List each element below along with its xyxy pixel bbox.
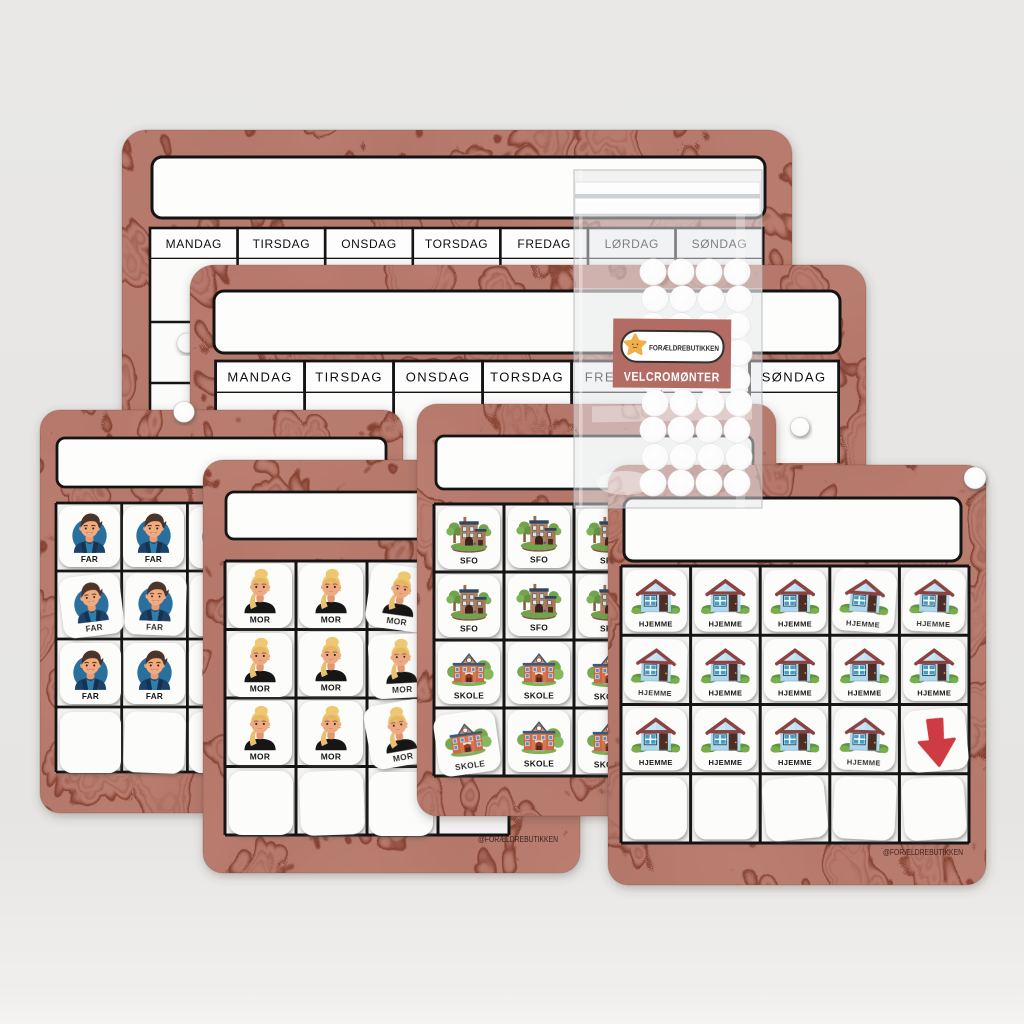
svg-text:FAR: FAR <box>146 622 164 632</box>
svg-text:SFO: SFO <box>460 624 478 634</box>
svg-text:FREDAG: FREDAG <box>517 237 571 251</box>
svg-text:TIRSDAG: TIRSDAG <box>253 237 311 251</box>
svg-text:HJEMME: HJEMME <box>708 619 742 628</box>
svg-text:MANDAG: MANDAG <box>166 237 222 251</box>
svg-text:SKOLE: SKOLE <box>454 691 484 701</box>
svg-text:MOR: MOR <box>250 615 270 625</box>
svg-text:MOR: MOR <box>392 684 413 695</box>
svg-text:SFO: SFO <box>460 556 478 566</box>
svg-text:MOR: MOR <box>250 684 270 694</box>
svg-text:TORSDAG: TORSDAG <box>490 370 564 385</box>
svg-text:FAR: FAR <box>81 555 98 564</box>
svg-text:MOR: MOR <box>321 683 341 693</box>
svg-text:HJEMME: HJEMME <box>708 758 742 767</box>
svg-text:MOR: MOR <box>321 752 341 762</box>
svg-text:TIRSDAG: TIRSDAG <box>315 370 383 385</box>
svg-text:HJEMME: HJEMME <box>847 757 881 767</box>
svg-text:HJEMME: HJEMME <box>708 689 742 698</box>
svg-text:MOR: MOR <box>250 752 270 762</box>
svg-text:HJEMME: HJEMME <box>639 619 673 628</box>
svg-text:HJEMME: HJEMME <box>639 758 673 767</box>
svg-text:ONSDAG: ONSDAG <box>406 370 471 385</box>
svg-text:HJEMME: HJEMME <box>916 619 950 629</box>
svg-text:SØNDAG: SØNDAG <box>762 370 827 385</box>
svg-text:TORSDAG: TORSDAG <box>425 237 488 251</box>
svg-text:HJEMME: HJEMME <box>778 619 812 628</box>
svg-text:SFO: SFO <box>530 623 548 633</box>
svg-text:ONSDAG: ONSDAG <box>341 237 397 251</box>
svg-text:FAR: FAR <box>145 555 162 564</box>
svg-text:FAR: FAR <box>82 692 99 701</box>
svg-text:@FORÆLDREBUTIKKEN: @FORÆLDREBUTIKKEN <box>478 834 558 844</box>
svg-text:HJEMME: HJEMME <box>778 689 812 698</box>
svg-text:SFO: SFO <box>530 555 548 565</box>
svg-text:FAR: FAR <box>146 692 163 701</box>
svg-text:HJEMME: HJEMME <box>638 688 672 698</box>
svg-text:HJEMME: HJEMME <box>917 689 951 698</box>
svg-text:SKOLE: SKOLE <box>524 691 554 701</box>
svg-text:@FORÆLDREBUTIKKEN: @FORÆLDREBUTIKKEN <box>883 847 963 857</box>
svg-text:HJEMME: HJEMME <box>778 758 812 767</box>
svg-text:MOR: MOR <box>321 615 341 625</box>
svg-text:HJEMME: HJEMME <box>848 689 882 698</box>
svg-text:MANDAG: MANDAG <box>227 370 292 385</box>
svg-text:SKOLE: SKOLE <box>524 759 554 769</box>
